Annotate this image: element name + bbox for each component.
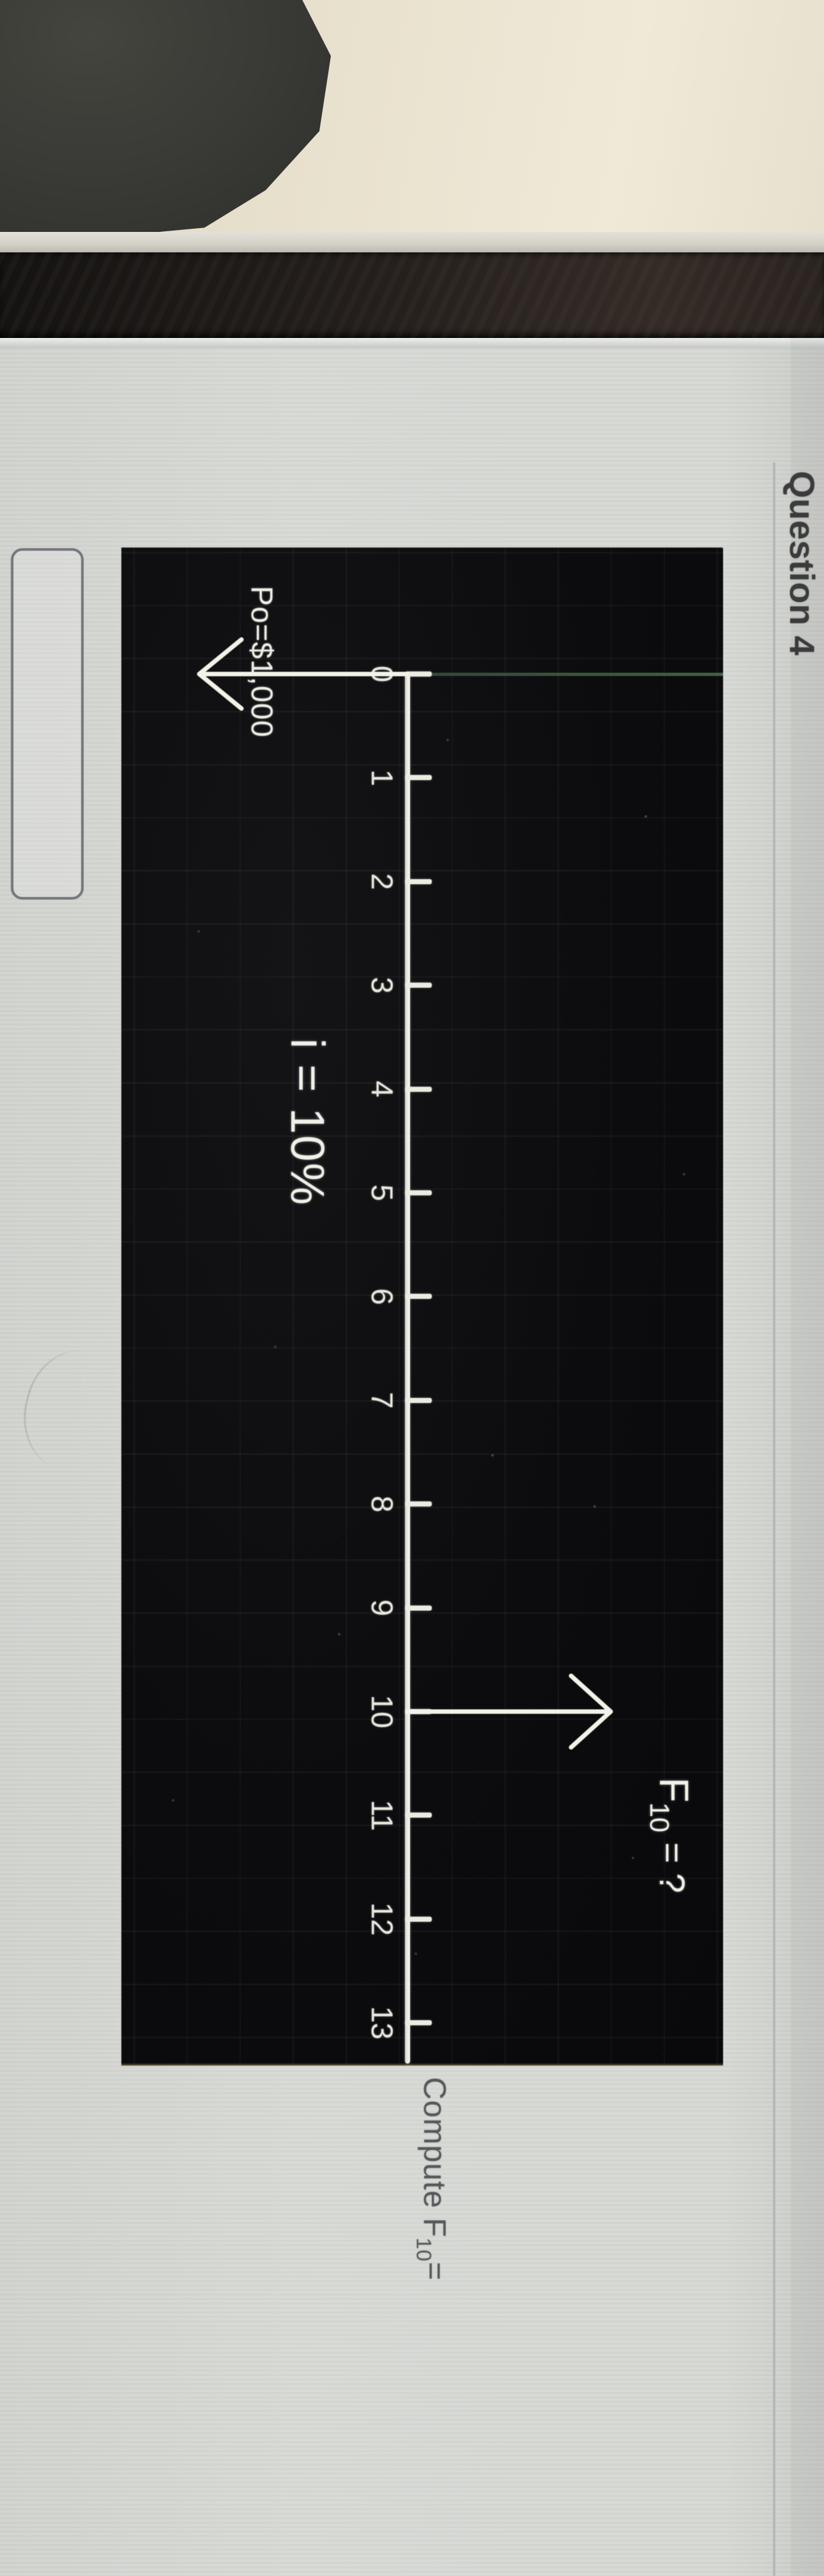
cashflow-diagram: 012345678910111213 Po=$1,000 F10 = ? [121, 548, 723, 2066]
t0-vertical-line [428, 673, 723, 676]
tick-mark [405, 983, 432, 988]
tick-label: 5 [365, 1164, 400, 1222]
tick-label: 12 [365, 1890, 400, 1948]
laptop-bezel-band [0, 252, 824, 338]
tick-label: 11 [365, 1786, 400, 1844]
tick-mark [405, 2020, 432, 2025]
future-value-label: F10 = ? [644, 1777, 698, 1893]
tick-label: 13 [365, 1994, 400, 2051]
compute-prompt: Compute F10= [412, 2077, 452, 2281]
tick-label: 2 [365, 853, 400, 910]
tick-label: 3 [365, 956, 400, 1014]
screen-top-shade [791, 330, 824, 2576]
tick-mark [405, 1190, 432, 1195]
answer-input[interactable] [11, 548, 84, 900]
tick-label: 1 [365, 749, 400, 806]
tick-mark [405, 1398, 432, 1403]
tick-mark [405, 775, 432, 780]
tick-mark [405, 1606, 432, 1611]
dust-specks [722, 548, 723, 549]
tick-mark [405, 879, 432, 884]
tick-label: 8 [365, 1475, 400, 1533]
heading-divider [773, 463, 775, 2576]
tick-label: 9 [365, 1579, 400, 1637]
tick-mark [405, 1087, 432, 1092]
po-value-label: Po=$1,000 [245, 586, 280, 738]
tick-mark [405, 1813, 432, 1818]
photo-of-laptop-screen: Question 4 012345678910111213 Po=$1,000 [0, 0, 824, 2576]
tick-mark [405, 671, 432, 677]
tick-mark [405, 1917, 432, 1922]
tick-label: 4 [365, 1061, 400, 1118]
tick-mark [405, 1501, 432, 1506]
down-arrow-icon [188, 629, 409, 719]
tick-label: 10 [365, 1683, 400, 1740]
up-arrow-icon [405, 1667, 616, 1756]
tick-label: 7 [365, 1372, 400, 1429]
question-title: Question 4 [782, 471, 823, 655]
laptop-lid-edge [0, 232, 824, 254]
tick-mark [405, 1294, 432, 1299]
tick-label: 6 [365, 1268, 400, 1325]
screen-content: Question 4 012345678910111213 Po=$1,000 [0, 330, 824, 2576]
interest-rate-label: i = 10% [280, 1038, 335, 1206]
